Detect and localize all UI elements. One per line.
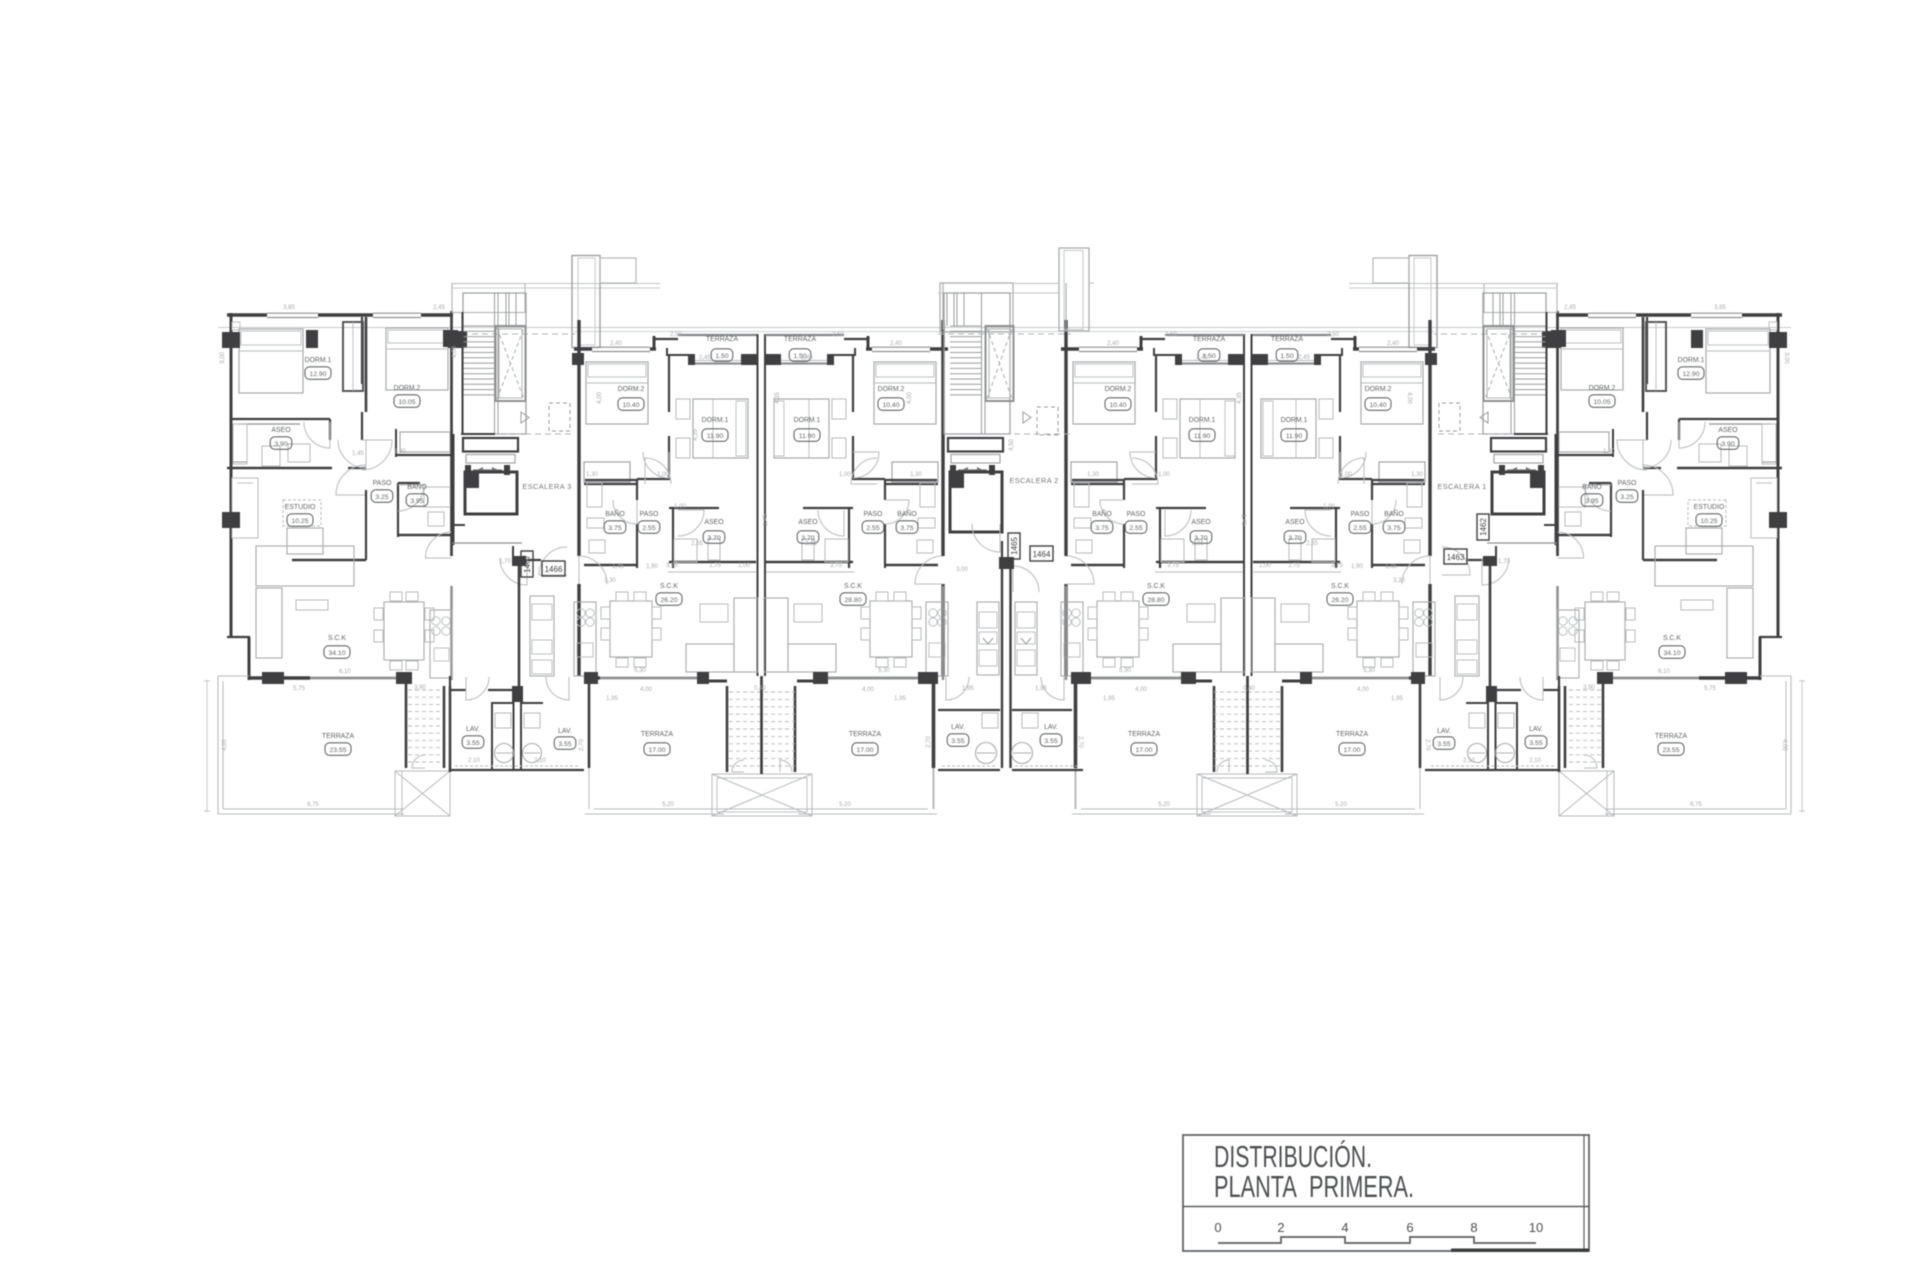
svg-text:PASO: PASO [1618, 480, 1637, 487]
svg-text:ESTUDIO: ESTUDIO [1694, 504, 1725, 511]
svg-text:S.C.K: S.C.K [1663, 635, 1681, 642]
svg-text:1,30: 1,30 [1087, 472, 1099, 478]
svg-text:2,45: 2,45 [1196, 355, 1208, 361]
svg-text:2,40: 2,40 [1387, 341, 1399, 347]
svg-text:4,35: 4,35 [1237, 392, 1243, 404]
svg-text:17.00: 17.00 [648, 747, 665, 754]
svg-text:PASO: PASO [640, 511, 659, 518]
svg-text:4,35: 4,35 [775, 392, 781, 404]
svg-text:1,95: 1,95 [1103, 696, 1115, 702]
svg-text:1,00: 1,00 [657, 472, 669, 478]
svg-text:PASO: PASO [373, 480, 392, 487]
svg-text:2.55: 2.55 [1129, 525, 1142, 532]
svg-text:LAV.: LAV. [1529, 726, 1543, 733]
svg-text:2,65: 2,65 [1306, 541, 1318, 547]
svg-text:5,30: 5,30 [1363, 668, 1375, 674]
svg-text:PASO: PASO [1127, 511, 1146, 518]
svg-text:10.40: 10.40 [882, 402, 899, 409]
svg-text:ASEO: ASEO [271, 427, 291, 434]
svg-text:2,65: 2,65 [1192, 541, 1204, 547]
svg-text:LAV.: LAV. [951, 724, 965, 731]
svg-text:4,35: 4,35 [693, 429, 699, 441]
svg-text:4,00: 4,00 [1406, 392, 1412, 404]
svg-text:3.90: 3.90 [274, 441, 287, 448]
svg-text:3.55: 3.55 [1437, 741, 1450, 748]
svg-text:4,00: 4,00 [1135, 687, 1147, 693]
svg-text:2.55: 2.55 [866, 525, 879, 532]
svg-text:34.10: 34.10 [1663, 650, 1680, 657]
svg-text:2,45: 2,45 [1298, 355, 1310, 361]
svg-text:3.55: 3.55 [1529, 740, 1542, 747]
svg-text:LAV.: LAV. [558, 728, 572, 735]
svg-text:TERRAZA: TERRAZA [1336, 731, 1369, 738]
svg-text:2,40: 2,40 [610, 341, 622, 347]
svg-text:2,70: 2,70 [1077, 736, 1083, 748]
svg-text:S.C.K: S.C.K [660, 583, 678, 590]
svg-text:1462: 1462 [1479, 518, 1488, 536]
svg-text:5,30: 5,30 [634, 668, 646, 674]
svg-text:10.25: 10.25 [1700, 518, 1717, 525]
svg-text:1,90: 1,90 [646, 564, 658, 570]
svg-text:1,70: 1,70 [499, 559, 511, 565]
svg-text:TERRAZA: TERRAZA [784, 336, 817, 343]
svg-text:3.75: 3.75 [608, 525, 621, 532]
svg-text:ESTUDIO: ESTUDIO [285, 504, 316, 511]
svg-text:TERRAZA: TERRAZA [641, 731, 674, 738]
svg-text:3,75: 3,75 [1167, 563, 1179, 569]
svg-text:1,95: 1,95 [894, 696, 906, 702]
svg-text:2,10: 2,10 [534, 758, 546, 764]
svg-text:S.C.K: S.C.K [1331, 583, 1349, 590]
svg-text:DORM.2: DORM.2 [394, 385, 421, 392]
svg-text:5,20: 5,20 [662, 802, 674, 808]
svg-text:28.80: 28.80 [1147, 597, 1164, 604]
svg-text:5,20: 5,20 [839, 802, 851, 808]
svg-text:10.25: 10.25 [291, 518, 308, 525]
svg-text:10.05: 10.05 [398, 399, 415, 406]
svg-text:1,90: 1,90 [1603, 449, 1615, 455]
svg-text:ESCALERA 2: ESCALERA 2 [1009, 476, 1058, 485]
svg-text:11.90: 11.90 [707, 433, 724, 440]
svg-text:1,00: 1,00 [674, 504, 686, 510]
svg-text:LAV.: LAV. [1437, 728, 1451, 735]
svg-text:BAÑO: BAÑO [1384, 509, 1404, 518]
svg-text:2,70: 2,70 [926, 736, 932, 748]
svg-text:6,10: 6,10 [1658, 669, 1670, 675]
svg-text:2,10: 2,10 [1463, 758, 1475, 764]
svg-text:1463: 1463 [1447, 553, 1465, 562]
svg-text:4,00: 4,00 [1781, 739, 1787, 751]
svg-text:11.90: 11.90 [1194, 433, 1211, 440]
svg-text:4,00: 4,00 [862, 687, 874, 693]
svg-text:12.90: 12.90 [1682, 371, 1699, 378]
svg-text:0,40: 0,40 [754, 686, 766, 692]
svg-text:3,85: 3,85 [1714, 305, 1726, 311]
svg-text:10.40: 10.40 [1109, 402, 1126, 409]
svg-text:1,00: 1,00 [1158, 472, 1170, 478]
svg-text:2,45: 2,45 [699, 355, 711, 361]
svg-text:1.50: 1.50 [1280, 353, 1293, 360]
svg-text:ASEO: ASEO [1285, 519, 1305, 526]
svg-text:DORM.2: DORM.2 [1365, 386, 1392, 393]
svg-text:DORM.2: DORM.2 [618, 386, 645, 393]
svg-text:3.70: 3.70 [1288, 535, 1301, 542]
svg-text:5,20: 5,20 [1158, 802, 1170, 808]
svg-text:4,50: 4,50 [1009, 439, 1015, 451]
svg-text:3.95: 3.95 [1585, 498, 1598, 505]
svg-text:DORM.1: DORM.1 [794, 417, 821, 424]
svg-text:TERRAZA: TERRAZA [849, 731, 882, 738]
svg-text:3,75: 3,75 [666, 563, 678, 569]
svg-text:4,00: 4,00 [907, 392, 913, 404]
svg-text:1,00: 1,00 [839, 472, 851, 478]
svg-text:1,90: 1,90 [394, 449, 406, 455]
svg-text:2,70: 2,70 [1424, 739, 1430, 751]
svg-text:4: 4 [1341, 1220, 1348, 1235]
svg-text:1,30: 1,30 [586, 472, 598, 478]
svg-text:12.90: 12.90 [309, 371, 326, 378]
svg-text:5,30: 5,30 [878, 668, 890, 674]
svg-text:2,45: 2,45 [433, 305, 445, 311]
svg-text:3.55: 3.55 [558, 741, 571, 748]
svg-text:1,30: 1,30 [1411, 472, 1423, 478]
svg-text:11.90: 11.90 [1286, 433, 1303, 440]
svg-text:1.50: 1.50 [715, 353, 728, 360]
svg-text:5,20: 5,20 [1335, 802, 1347, 808]
svg-text:0,40: 0,40 [1243, 686, 1255, 692]
svg-text:11.90: 11.90 [799, 433, 816, 440]
svg-text:1464: 1464 [1033, 550, 1051, 559]
svg-text:TERRAZA: TERRAZA [1128, 731, 1161, 738]
svg-text:3,90: 3,90 [414, 685, 426, 691]
svg-text:LAV.: LAV. [466, 726, 480, 733]
svg-text:2,45: 2,45 [1564, 305, 1576, 311]
svg-text:LAV.: LAV. [1044, 724, 1058, 731]
svg-text:0: 0 [1214, 1220, 1221, 1235]
svg-text:2.55: 2.55 [642, 525, 655, 532]
svg-text:1467: 1467 [523, 555, 532, 573]
svg-text:1,90: 1,90 [1351, 564, 1363, 570]
svg-text:DORM.2: DORM.2 [1105, 386, 1132, 393]
svg-text:5,75: 5,75 [1704, 686, 1716, 692]
svg-text:1,45: 1,45 [352, 451, 364, 457]
svg-text:S.C.K: S.C.K [1147, 583, 1165, 590]
svg-text:10.40: 10.40 [1369, 402, 1386, 409]
svg-text:ESCALERA 3: ESCALERA 3 [522, 482, 571, 491]
svg-text:3.75: 3.75 [1387, 525, 1400, 532]
svg-text:PASO: PASO [1351, 511, 1370, 518]
svg-text:TERRAZA: TERRAZA [1271, 336, 1304, 343]
svg-text:3.70: 3.70 [707, 535, 720, 542]
svg-text:DORM.1: DORM.1 [1189, 417, 1216, 424]
svg-text:10: 10 [1529, 1220, 1543, 1235]
svg-text:1,95: 1,95 [606, 696, 618, 702]
svg-text:ASEO: ASEO [1191, 519, 1211, 526]
svg-text:10.05: 10.05 [1593, 399, 1610, 406]
svg-text:DORM.1: DORM.1 [1678, 357, 1705, 364]
svg-text:2,65: 2,65 [805, 541, 817, 547]
svg-text:1,00: 1,00 [1340, 472, 1352, 478]
svg-text:5,75: 5,75 [293, 686, 305, 692]
svg-text:6,75: 6,75 [307, 802, 319, 808]
svg-text:3,85: 3,85 [283, 305, 295, 311]
svg-text:5,30: 5,30 [1119, 668, 1131, 674]
svg-text:ESCALERA 1: ESCALERA 1 [1437, 482, 1486, 491]
svg-text:4,00: 4,00 [222, 739, 228, 751]
svg-text:1465: 1465 [1010, 537, 1019, 555]
svg-text:ASEO: ASEO [1718, 427, 1738, 434]
svg-text:3,90: 3,90 [1583, 685, 1595, 691]
svg-text:TERRAZA: TERRAZA [706, 336, 739, 343]
svg-text:DORM.2: DORM.2 [1589, 385, 1616, 392]
svg-text:23.55: 23.55 [329, 747, 346, 754]
svg-text:2,45: 2,45 [801, 355, 813, 361]
svg-text:1,75: 1,75 [709, 563, 721, 569]
svg-text:3,30: 3,30 [1393, 578, 1405, 584]
svg-text:2,40: 2,40 [890, 341, 902, 347]
svg-text:2.55: 2.55 [1353, 525, 1366, 532]
svg-text:1,70: 1,70 [1498, 559, 1510, 565]
svg-text:DORM.1: DORM.1 [305, 357, 332, 364]
svg-text:1,45: 1,45 [1385, 564, 1397, 570]
svg-text:4,00: 4,00 [452, 346, 458, 358]
svg-text:2,10: 2,10 [1529, 758, 1541, 764]
svg-text:34.10: 34.10 [328, 650, 345, 657]
svg-text:26.20: 26.20 [1331, 597, 1348, 604]
svg-text:8: 8 [1470, 1220, 1477, 1235]
svg-text:1,95: 1,95 [1391, 696, 1403, 702]
svg-text:3.55: 3.55 [951, 738, 964, 745]
svg-text:1,00: 1,00 [1323, 504, 1335, 510]
svg-text:3.25: 3.25 [375, 494, 388, 501]
svg-text:3,00: 3,00 [956, 567, 968, 573]
svg-text:6: 6 [1406, 1220, 1413, 1235]
svg-text:1,45: 1,45 [763, 514, 769, 526]
svg-text:S.C.K: S.C.K [844, 583, 862, 590]
svg-text:10.40: 10.40 [622, 402, 639, 409]
svg-text:3,00: 3,00 [1783, 352, 1789, 364]
svg-text:1,75: 1,75 [1288, 563, 1300, 569]
svg-text:6,10: 6,10 [339, 669, 351, 675]
svg-text:PLANTA PRIMERA.: PLANTA PRIMERA. [1214, 1169, 1414, 1204]
svg-text:4,00: 4,00 [640, 687, 652, 693]
svg-text:3,75: 3,75 [830, 563, 842, 569]
svg-text:1,45: 1,45 [1240, 514, 1246, 526]
svg-text:DORM.1: DORM.1 [1281, 417, 1308, 424]
svg-text:S.C.K: S.C.K [328, 635, 346, 642]
svg-text:BAÑO: BAÑO [1092, 509, 1112, 518]
svg-text:3.75: 3.75 [900, 525, 913, 532]
svg-text:2,10: 2,10 [468, 758, 480, 764]
svg-text:17.00: 17.00 [1343, 747, 1360, 754]
svg-text:2,65: 2,65 [691, 541, 703, 547]
svg-text:BAÑO: BAÑO [605, 509, 625, 518]
svg-text:1466: 1466 [545, 565, 563, 574]
svg-text:3,30: 3,30 [604, 578, 616, 584]
svg-text:1,30: 1,30 [910, 472, 922, 478]
svg-text:26.20: 26.20 [660, 597, 677, 604]
svg-text:2,50: 2,50 [832, 332, 844, 338]
svg-text:2,50: 2,50 [670, 332, 682, 338]
svg-text:2,70: 2,70 [579, 739, 585, 751]
svg-text:BAÑO: BAÑO [407, 482, 427, 491]
svg-text:DORM.1: DORM.1 [702, 417, 729, 424]
svg-text:17.00: 17.00 [1135, 747, 1152, 754]
svg-text:BAÑO: BAÑO [1582, 482, 1602, 491]
svg-text:1,45: 1,45 [612, 564, 624, 570]
svg-text:17.00: 17.00 [856, 747, 873, 754]
svg-text:23.55: 23.55 [1662, 747, 1679, 754]
svg-text:2,50: 2,50 [1165, 332, 1177, 338]
svg-text:1,00: 1,00 [738, 563, 750, 569]
svg-text:1,95: 1,95 [1035, 686, 1047, 692]
svg-text:2,50: 2,50 [1327, 332, 1339, 338]
svg-text:3.55: 3.55 [466, 740, 479, 747]
svg-text:4,00: 4,00 [1357, 687, 1369, 693]
svg-text:3.75: 3.75 [1095, 525, 1108, 532]
svg-text:TERRAZA: TERRAZA [1193, 336, 1226, 343]
svg-text:ASEO: ASEO [704, 519, 724, 526]
svg-text:ASEO: ASEO [798, 519, 818, 526]
svg-text:3.90: 3.90 [1721, 441, 1734, 448]
svg-text:28.80: 28.80 [844, 597, 861, 604]
svg-text:PASO: PASO [864, 511, 883, 518]
svg-text:6,75: 6,75 [1690, 802, 1702, 808]
svg-text:1,00: 1,00 [1259, 563, 1271, 569]
svg-text:3.95: 3.95 [410, 498, 423, 505]
svg-text:3.25: 3.25 [1620, 494, 1633, 501]
svg-text:2,40: 2,40 [1107, 341, 1119, 347]
svg-text:TERRAZA: TERRAZA [1655, 733, 1688, 740]
svg-text:TERRAZA: TERRAZA [322, 733, 355, 740]
svg-text:3.55: 3.55 [1044, 738, 1057, 745]
svg-text:1,95: 1,95 [962, 686, 974, 692]
svg-text:DORM.2: DORM.2 [878, 386, 905, 393]
svg-text:3,00: 3,00 [220, 352, 226, 364]
svg-text:BAÑO: BAÑO [897, 509, 917, 518]
svg-text:3,75: 3,75 [1331, 563, 1343, 569]
svg-text:2: 2 [1277, 1220, 1284, 1235]
svg-text:4,00: 4,00 [597, 392, 603, 404]
